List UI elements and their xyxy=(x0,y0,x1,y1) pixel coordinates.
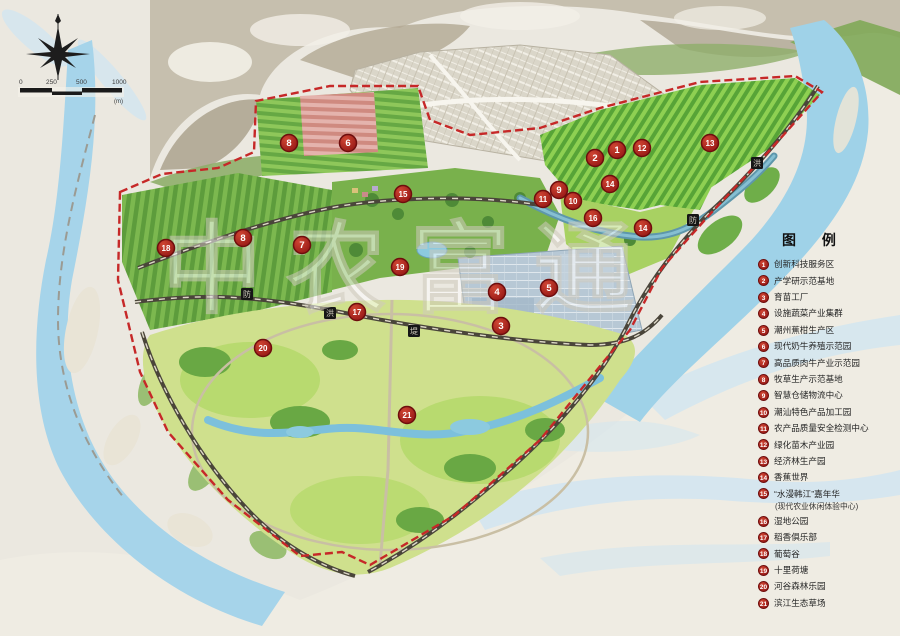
legend-item-label: 高品质肉牛产业示范园 xyxy=(774,359,860,368)
legend-item-number: 20 xyxy=(758,581,769,592)
legend-item: 17稻香俱乐部 xyxy=(758,532,898,543)
svg-text:14: 14 xyxy=(606,180,615,189)
legend-item: 6现代奶牛养殖示范园 xyxy=(758,341,898,352)
svg-text:11: 11 xyxy=(539,195,548,204)
svg-text:5: 5 xyxy=(546,283,552,294)
legend-item: 14香蕉世界 xyxy=(758,472,898,483)
map-marker-12: 12 xyxy=(634,140,651,157)
legend-item-label: 潮州蕉柑生产区 xyxy=(774,326,834,335)
legend-item: 18葡萄谷 xyxy=(758,548,898,559)
legend-item: 12绿化苗木产业园 xyxy=(758,439,898,450)
legend-item-number: 19 xyxy=(758,565,769,576)
map-marker-8: 8 xyxy=(281,135,298,152)
legend-item-number: 5 xyxy=(758,325,769,336)
map-marker-14: 14 xyxy=(602,176,619,193)
map-marker-6: 6 xyxy=(340,135,357,152)
svg-text:500: 500 xyxy=(76,79,87,86)
legend-item-number: 3 xyxy=(758,292,769,303)
legend-item-number: 1 xyxy=(758,259,769,270)
svg-text:3: 3 xyxy=(498,321,503,332)
svg-text:1000: 1000 xyxy=(112,79,127,86)
map-marker-4: 4 xyxy=(489,284,506,301)
map-marker-3: 3 xyxy=(493,318,510,335)
legend-panel: 图 例 1创新科技服务区2产学研示范基地3育苗工厂4设施蔬菜产业集群5潮州蕉柑生… xyxy=(758,230,898,614)
dike-label: 防 xyxy=(687,214,699,226)
legend-item-note: (现代农业休闲体验中心) xyxy=(775,503,898,511)
legend-item: 20河谷森林乐园 xyxy=(758,581,898,592)
svg-text:4: 4 xyxy=(494,287,500,298)
svg-text:洪: 洪 xyxy=(753,158,761,168)
legend-item-label: 香蕉世界 xyxy=(774,473,808,482)
legend-item: 3育苗工厂 xyxy=(758,292,898,303)
map-marker-18: 18 xyxy=(158,240,175,257)
legend-item-number: 11 xyxy=(758,423,769,434)
legend-item: 13经济林生产园 xyxy=(758,456,898,467)
svg-text:21: 21 xyxy=(403,411,412,420)
legend-item: 8牧草生产示范基地 xyxy=(758,374,898,385)
map-marker-14: 14 xyxy=(635,220,652,237)
legend-item-number: 13 xyxy=(758,456,769,467)
svg-text:14: 14 xyxy=(639,224,648,233)
svg-text:防: 防 xyxy=(689,215,697,225)
legend-item-number: 9 xyxy=(758,390,769,401)
legend-item-number: 12 xyxy=(758,439,769,450)
svg-text:250: 250 xyxy=(46,79,57,86)
legend-title: 图 例 xyxy=(782,230,898,250)
legend-item-label: 滨江生态草场 xyxy=(774,599,826,608)
legend-item: 4设施蔬菜产业集群 xyxy=(758,308,898,319)
legend-item-label: 智慧仓储物流中心 xyxy=(774,391,843,400)
svg-text:12: 12 xyxy=(638,144,647,153)
svg-text:9: 9 xyxy=(556,185,561,196)
map-marker-16: 16 xyxy=(585,210,602,227)
svg-text:13: 13 xyxy=(706,139,715,148)
svg-text:1: 1 xyxy=(614,145,620,156)
map-marker-15: 15 xyxy=(395,186,412,203)
legend-item: 9智慧仓储物流中心 xyxy=(758,390,898,401)
legend-item-label: 牧草生产示范基地 xyxy=(774,375,843,384)
map-marker-8: 8 xyxy=(235,230,252,247)
legend-item-number: 8 xyxy=(758,374,769,385)
legend-item-label: 设施蔬菜产业集群 xyxy=(774,309,843,318)
svg-text:0: 0 xyxy=(19,79,23,86)
svg-text:7: 7 xyxy=(299,240,304,251)
map-marker-19: 19 xyxy=(392,259,409,276)
svg-text:17: 17 xyxy=(353,308,362,317)
watermark: 中农富通 xyxy=(162,210,658,328)
legend-item-number: 15 xyxy=(758,488,769,499)
svg-text:(m): (m) xyxy=(114,99,123,105)
legend-item: 1创新科技服务区 xyxy=(758,259,898,270)
map-marker-9: 9 xyxy=(551,182,568,199)
legend-item-label: 产学研示范基地 xyxy=(774,277,834,286)
legend-item-number: 10 xyxy=(758,407,769,418)
map-marker-5: 5 xyxy=(541,280,558,297)
legend-item-number: 14 xyxy=(758,472,769,483)
svg-text:8: 8 xyxy=(240,233,245,244)
legend-item-number: 16 xyxy=(758,516,769,527)
svg-text:8: 8 xyxy=(286,138,291,149)
legend-item-number: 6 xyxy=(758,341,769,352)
dike-label: 洪 xyxy=(751,157,763,169)
map-marker-7: 7 xyxy=(294,237,311,254)
svg-text:16: 16 xyxy=(589,214,598,223)
legend-item: 19十里荷塘 xyxy=(758,565,898,576)
legend-item: 2产学研示范基地 xyxy=(758,275,898,286)
legend-item-label: 湿地公园 xyxy=(774,517,808,526)
legend-item: 21滨江生态草场 xyxy=(758,598,898,609)
legend-item: 5潮州蕉柑生产区 xyxy=(758,325,898,336)
legend-item-label: 十里荷塘 xyxy=(774,566,808,575)
legend-item-label: 现代奶牛养殖示范园 xyxy=(774,342,851,351)
svg-text:20: 20 xyxy=(259,344,268,353)
legend-item: 11农产品质量安全检测中心 xyxy=(758,423,898,434)
svg-text:6: 6 xyxy=(345,138,350,149)
legend-item-number: 7 xyxy=(758,357,769,368)
legend-item-label: “水漫韩江”嘉年华 xyxy=(774,490,840,499)
map-marker-2: 2 xyxy=(587,150,604,167)
legend-item: 15“水漫韩江”嘉年华 xyxy=(758,488,898,499)
legend-item-label: 经济林生产园 xyxy=(774,457,826,466)
legend-item-label: 育苗工厂 xyxy=(774,293,808,302)
legend-item-label: 绿化苗木产业园 xyxy=(774,441,834,450)
map-marker-13: 13 xyxy=(702,135,719,152)
map-marker-17: 17 xyxy=(349,304,366,321)
legend-item-number: 4 xyxy=(758,308,769,319)
legend-list: 1创新科技服务区2产学研示范基地3育苗工厂4设施蔬菜产业集群5潮州蕉柑生产区6现… xyxy=(758,259,898,609)
legend-item-number: 17 xyxy=(758,532,769,543)
map-marker-11: 11 xyxy=(535,191,552,208)
map-marker-10: 10 xyxy=(565,193,582,210)
legend-item-label: 潮汕特色产品加工园 xyxy=(774,408,851,417)
svg-text:15: 15 xyxy=(399,190,408,199)
legend-item-label: 稻香俱乐部 xyxy=(774,533,817,542)
legend-item-number: 18 xyxy=(758,548,769,559)
map-marker-20: 20 xyxy=(255,340,272,357)
legend-item-number: 21 xyxy=(758,598,769,609)
legend-item-number: 2 xyxy=(758,275,769,286)
legend-item: 16湿地公园 xyxy=(758,516,898,527)
legend-item: 7高品质肉牛产业示范园 xyxy=(758,357,898,368)
svg-text:18: 18 xyxy=(162,244,171,253)
legend-item-label: 农产品质量安全检测中心 xyxy=(774,424,869,433)
legend-item-label: 葡萄谷 xyxy=(774,550,800,559)
legend-item-label: 河谷森林乐园 xyxy=(774,582,826,591)
legend-item: 10潮汕特色产品加工园 xyxy=(758,407,898,418)
svg-text:2: 2 xyxy=(592,153,597,164)
svg-text:19: 19 xyxy=(396,263,405,272)
svg-text:10: 10 xyxy=(569,197,578,206)
map-marker-21: 21 xyxy=(399,407,416,424)
legend-item-label: 创新科技服务区 xyxy=(774,260,834,269)
map-marker-1: 1 xyxy=(609,142,626,159)
